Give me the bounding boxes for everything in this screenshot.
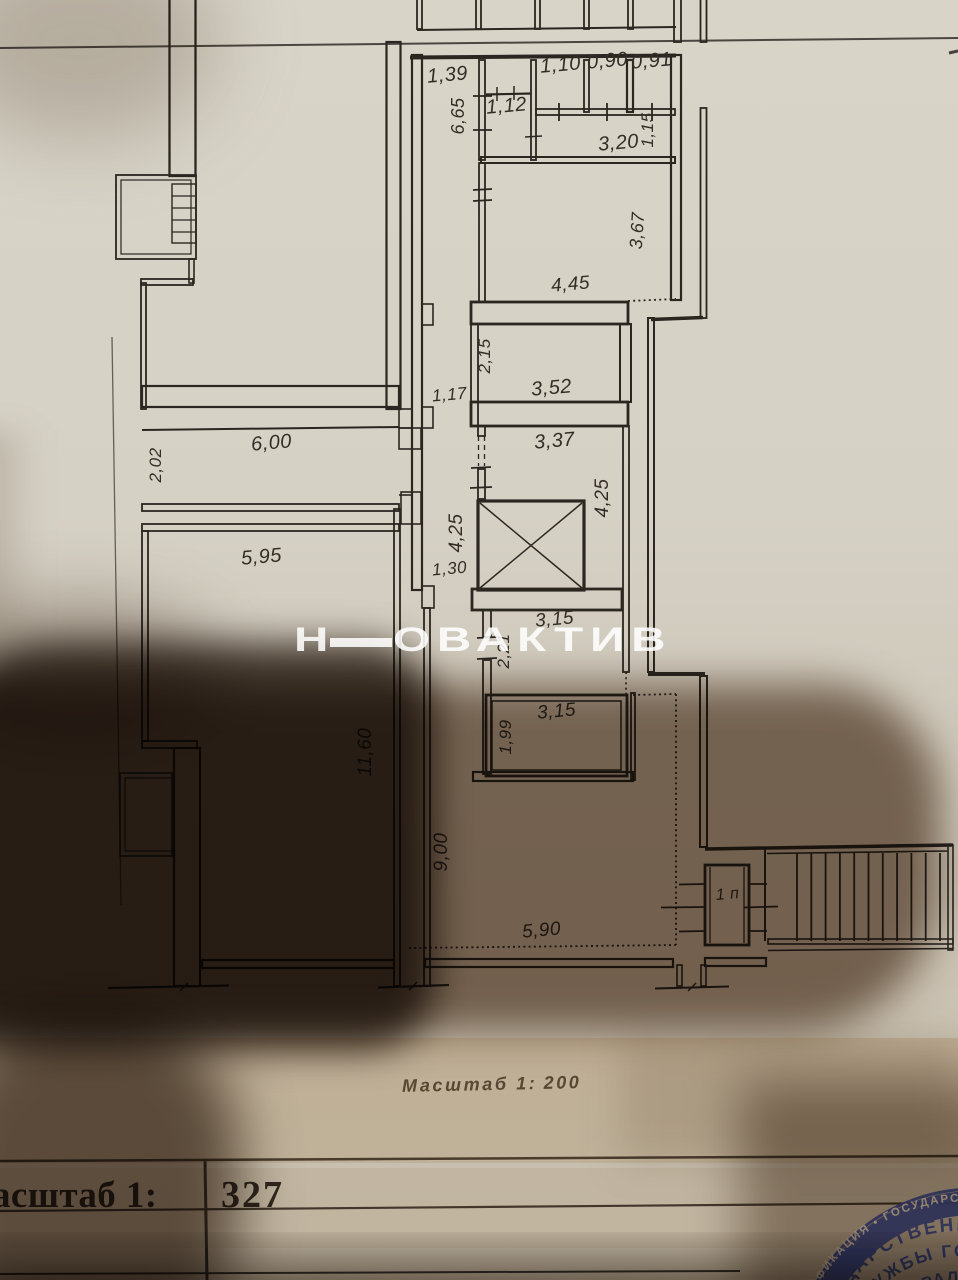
svg-text:1,12: 1,12 [485, 93, 528, 118]
svg-text:6,00: 6,00 [250, 430, 293, 455]
svg-text:4,25: 4,25 [592, 479, 613, 518]
svg-text:0,90: 0,90 [586, 48, 629, 73]
svg-text:4,25: 4,25 [446, 514, 467, 553]
svg-text:3,52: 3,52 [530, 375, 573, 400]
svg-text:3,37: 3,37 [533, 428, 576, 454]
svg-text:1,17: 1,17 [431, 384, 468, 406]
svg-text:1 п: 1 п [715, 885, 740, 904]
svg-text:3,15: 3,15 [536, 699, 577, 723]
svg-text:1,39: 1,39 [426, 62, 469, 87]
svg-text:1,10: 1,10 [539, 52, 582, 77]
svg-text:3,67: 3,67 [626, 211, 649, 250]
svg-text:11,60: 11,60 [355, 728, 376, 777]
svg-text:9,00: 9,00 [431, 833, 452, 872]
svg-text:5,95: 5,95 [240, 544, 283, 570]
svg-text:1,15: 1,15 [638, 112, 657, 147]
svg-text:1,30: 1,30 [431, 558, 468, 580]
svg-text:4,45: 4,45 [550, 272, 591, 296]
svg-text:6,65: 6,65 [448, 97, 468, 135]
svg-text:2,02: 2,02 [146, 447, 165, 483]
svg-text:327: 327 [221, 1174, 284, 1216]
svg-text:1,99: 1,99 [496, 719, 515, 754]
svg-text:асштаб 1:: асштаб 1: [0, 1175, 157, 1216]
svg-text:5,90: 5,90 [521, 918, 562, 942]
svg-text:2,15: 2,15 [475, 338, 494, 374]
svg-text:3,20: 3,20 [597, 130, 640, 155]
svg-text:0,91: 0,91 [630, 48, 673, 73]
